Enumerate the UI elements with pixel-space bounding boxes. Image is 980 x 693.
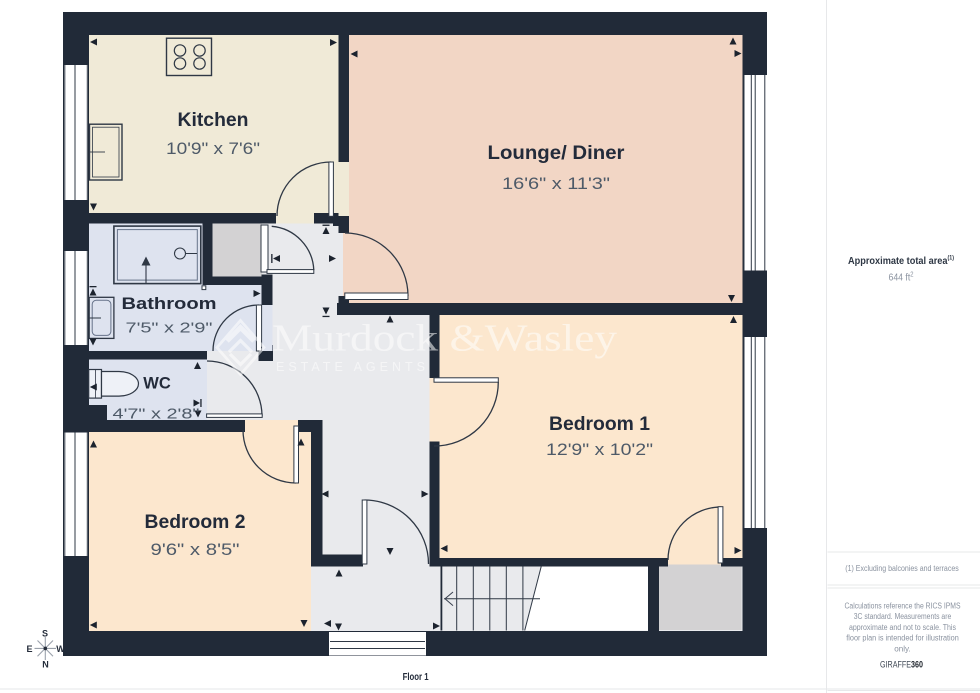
svg-text:only.: only.	[894, 644, 911, 653]
svg-text:GIRAFFE360: GIRAFFE360	[880, 660, 923, 670]
svg-text:16'6" x 11'3": 16'6" x 11'3"	[502, 174, 610, 193]
svg-text:floor plan is intended for ill: floor plan is intended for illustration	[846, 634, 959, 643]
svg-text:644 ft2: 644 ft2	[889, 272, 914, 284]
svg-text:7'5" x 2'9": 7'5" x 2'9"	[126, 320, 213, 337]
svg-text:N: N	[42, 660, 49, 670]
svg-text:Bedroom 1: Bedroom 1	[549, 413, 650, 435]
svg-text:12'9" x 10'2": 12'9" x 10'2"	[546, 440, 653, 459]
svg-text:Murdock &Wasley: Murdock &Wasley	[272, 318, 617, 360]
svg-text:E: E	[26, 644, 32, 654]
svg-text:Bathroom: Bathroom	[122, 295, 217, 313]
svg-text:4'7" x 2'8": 4'7" x 2'8"	[113, 406, 200, 423]
svg-text:Calculations reference the RIC: Calculations reference the RICS IPMS	[845, 601, 961, 610]
svg-text:approximate and not to scale.: approximate and not to scale. This	[849, 623, 956, 632]
svg-text:3C standard. Measurements are: 3C standard. Measurements are	[854, 612, 952, 621]
svg-text:S: S	[42, 629, 48, 639]
svg-text:9'6" x 8'5": 9'6" x 8'5"	[151, 540, 240, 559]
svg-text:Approximate total area(1): Approximate total area(1)	[848, 256, 954, 268]
svg-text:Lounge/ Diner: Lounge/ Diner	[488, 142, 625, 164]
svg-text:10'9" x 7'6": 10'9" x 7'6"	[166, 139, 260, 158]
svg-text:Bedroom 2: Bedroom 2	[145, 511, 246, 533]
svg-text:W: W	[56, 644, 65, 654]
svg-text:(1) Excluding balconies and te: (1) Excluding balconies and terraces	[845, 564, 959, 573]
svg-text:ESTATE AGENTS: ESTATE AGENTS	[276, 360, 429, 374]
svg-text:WC: WC	[143, 375, 171, 393]
svg-text:Floor 1: Floor 1	[403, 671, 429, 683]
svg-text:Kitchen: Kitchen	[178, 109, 249, 131]
